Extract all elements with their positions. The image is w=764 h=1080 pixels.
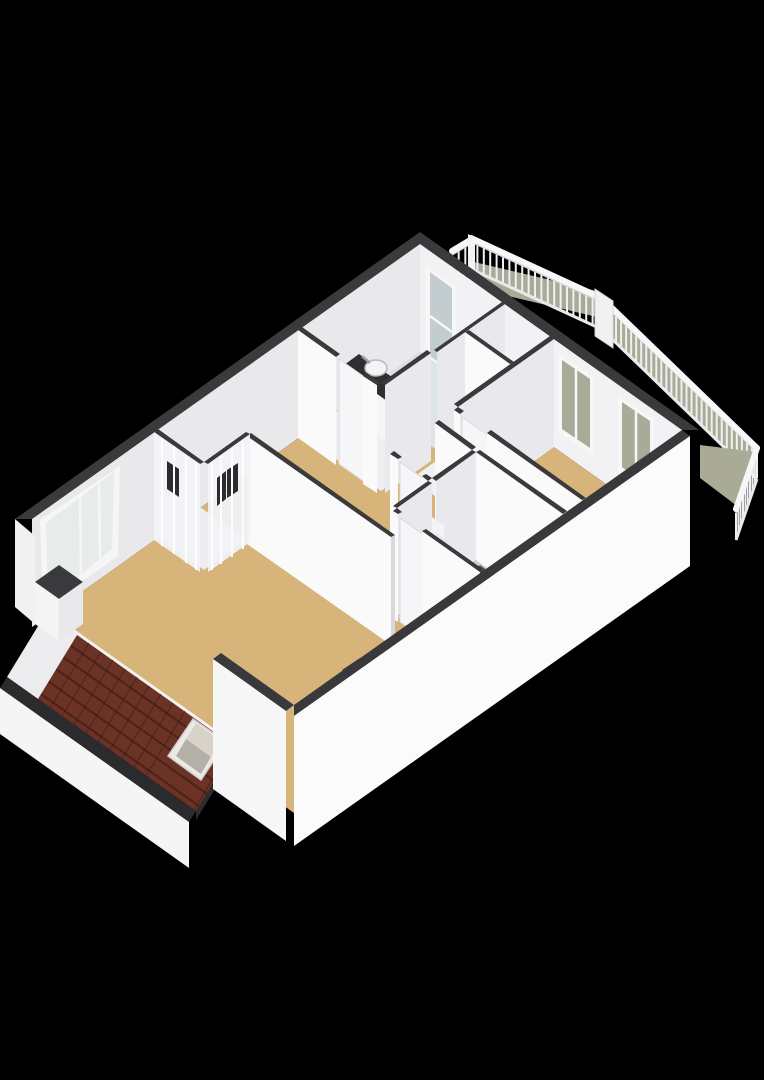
nw-corner-sliver <box>15 519 35 624</box>
living-window-mullion-1 <box>80 496 81 577</box>
floorplan-svg <box>0 0 764 1080</box>
floorplan-stage <box>0 0 764 1080</box>
closet-wall-face-2 <box>363 376 377 493</box>
hall-wall-end <box>391 535 395 645</box>
living-window-mullion-2 <box>99 482 100 563</box>
closet-door <box>339 359 366 483</box>
